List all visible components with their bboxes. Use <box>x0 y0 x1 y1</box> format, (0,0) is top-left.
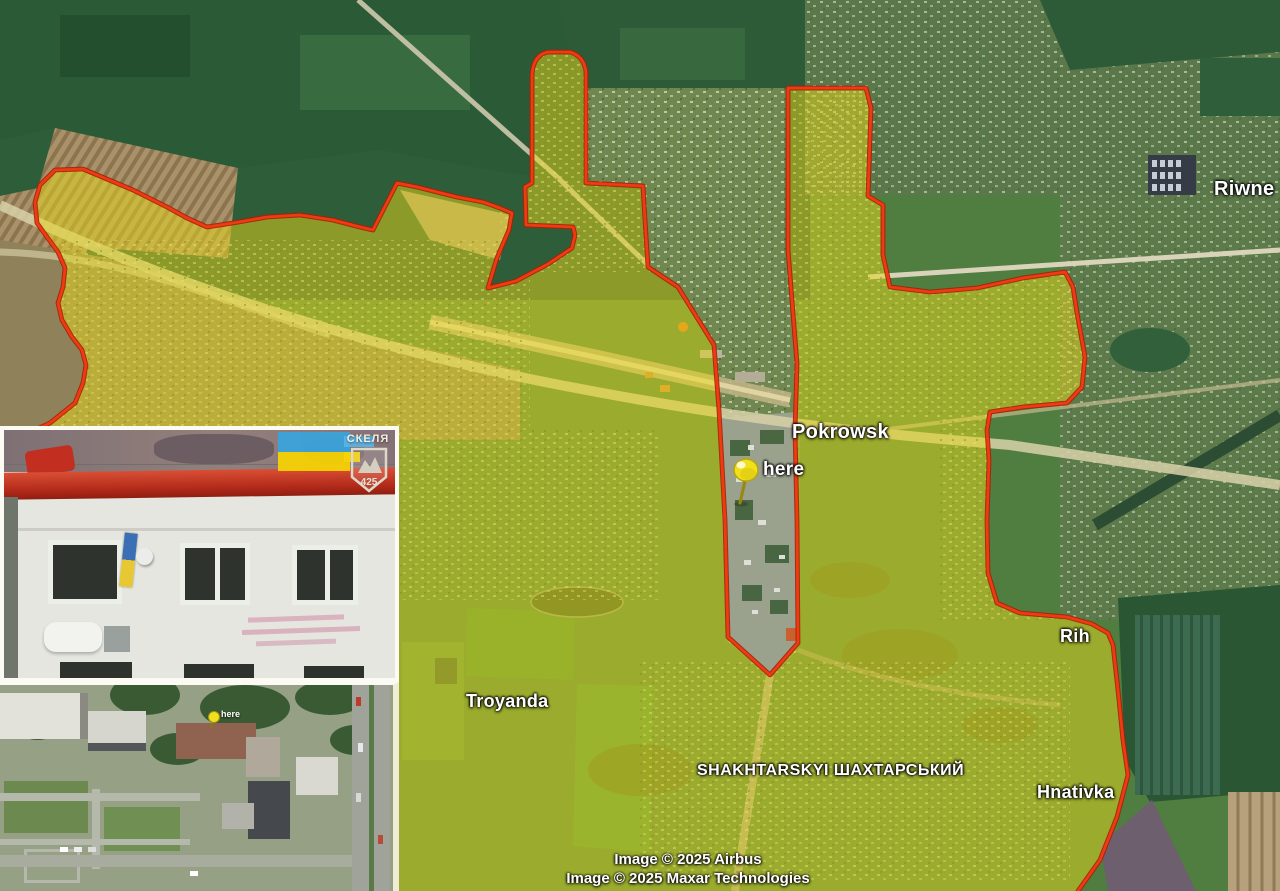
svg-text:425: 425 <box>361 477 378 488</box>
attribution-maxar: Image © 2025 Maxar Technologies <box>566 870 809 887</box>
building-red-roof <box>176 723 256 759</box>
flag-graphic-blue <box>278 432 350 452</box>
building <box>0 693 88 739</box>
flag-graphic-yellow <box>278 452 350 471</box>
window <box>184 664 254 678</box>
building <box>296 757 338 795</box>
window <box>48 540 122 604</box>
ac-unit <box>44 622 102 652</box>
window <box>292 545 358 605</box>
car <box>190 871 198 876</box>
building <box>222 803 254 829</box>
attribution-airbus: Image © 2025 Airbus <box>614 851 761 868</box>
car <box>60 847 68 852</box>
inset-drone-photo: СКЕЛЯ 425 <box>0 426 399 682</box>
building <box>246 737 280 777</box>
label-rih: Rih <box>1060 626 1090 647</box>
label-troyanda: Troyanda <box>466 691 548 712</box>
building-dark <box>248 781 290 839</box>
mini-map-pin <box>208 711 220 723</box>
path <box>0 793 200 801</box>
label-here: here <box>763 459 804 481</box>
road-median-trees <box>369 685 374 891</box>
car <box>358 743 363 752</box>
photo-texture <box>154 434 274 464</box>
red-beam <box>0 467 399 500</box>
ac-box <box>104 626 130 652</box>
window <box>60 662 132 678</box>
satellite-map-view[interactable]: Riwne Pokrowsk here Troyanda SHAKHTARSKY… <box>0 0 1280 891</box>
satellite-dish <box>136 548 153 565</box>
building <box>88 711 146 751</box>
label-shakhtarskyi: SHAKHTARSKYI ШАХТАРСЬКИЙ <box>697 762 964 780</box>
graffiti <box>248 614 344 622</box>
window <box>180 543 250 605</box>
car <box>88 847 96 852</box>
path <box>0 839 190 845</box>
mini-pin-label: here <box>221 709 240 719</box>
lawn <box>4 781 88 833</box>
car <box>356 793 361 802</box>
car <box>356 697 361 706</box>
car <box>74 847 82 852</box>
building-ledge <box>4 528 395 531</box>
road <box>0 855 352 867</box>
label-riwne: Riwne <box>1214 178 1274 201</box>
window <box>304 666 364 678</box>
label-pokrowsk: Pokrowsk <box>792 421 889 444</box>
unit-name: СКЕЛЯ <box>342 433 394 445</box>
graffiti <box>242 626 360 635</box>
building-edge <box>4 497 18 678</box>
graffiti <box>256 639 336 647</box>
car <box>378 835 383 844</box>
inset-satellite-closeup: here <box>0 682 399 891</box>
label-hnativka: Hnativka <box>1037 782 1114 803</box>
